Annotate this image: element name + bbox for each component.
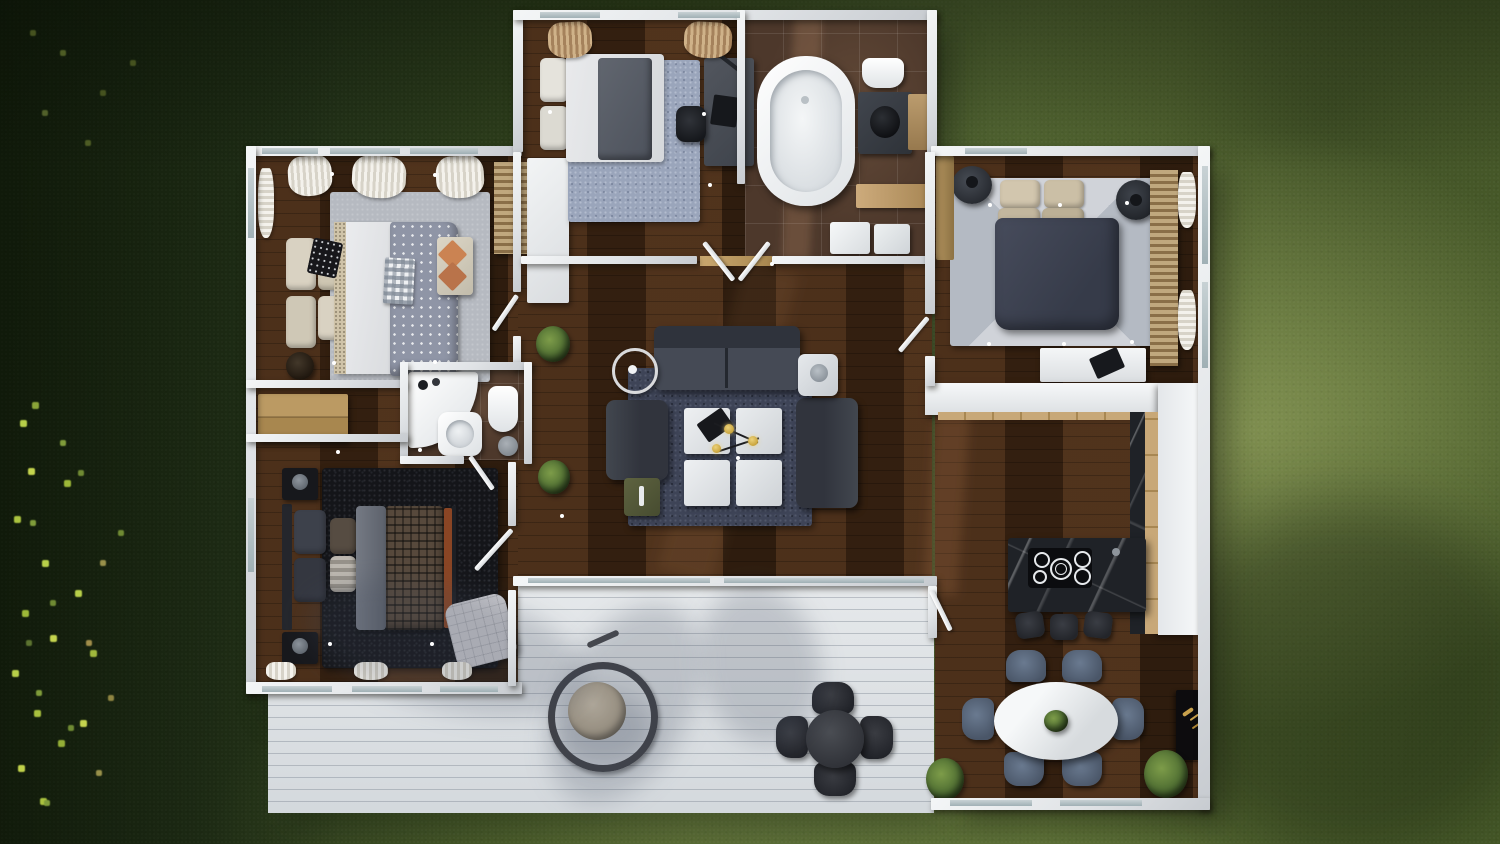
office-curtain [547, 21, 593, 59]
bedroom3-lamp [292, 474, 308, 490]
small-bath-toilet [488, 386, 518, 432]
bedroom1-side-curtain [258, 168, 274, 238]
living-armchair-left [606, 400, 668, 480]
kitchen-counter-top [925, 383, 1197, 415]
leaves-dull [60, 440, 66, 446]
shower-fixture [432, 378, 440, 386]
ceiling-lights [330, 172, 334, 176]
wall-interior [737, 10, 745, 184]
pendant-lamp-bulb [748, 436, 758, 446]
bedroom3-pillow [294, 510, 326, 554]
outdoor-table [806, 710, 864, 768]
living-sofa-cushion-split [725, 348, 728, 388]
outdoor-chair [776, 716, 808, 758]
office-pillow [540, 106, 568, 150]
white-wardrobe [527, 158, 569, 303]
window [1060, 800, 1142, 806]
window [440, 686, 498, 692]
pendant-lamp-bulb [712, 444, 721, 453]
window [678, 12, 740, 18]
window [1202, 282, 1208, 368]
kitchen-cabinet-wood-strip [1145, 412, 1158, 634]
master-slat-bench [1150, 170, 1178, 366]
bedroom3-curtain [442, 662, 472, 680]
coffee-table [736, 460, 782, 506]
leaves-bright [20, 420, 27, 427]
window [248, 168, 254, 238]
bathtub-basin [770, 70, 842, 192]
bedroom3-pillow [294, 558, 326, 602]
wall-interior [524, 362, 532, 464]
small-bath-stool [498, 436, 518, 456]
bar-stool [1014, 610, 1045, 640]
shower-fixture [418, 380, 428, 390]
living-plant [536, 326, 570, 362]
hanging-egg-chair-cushion [568, 682, 626, 740]
bath-dryer [874, 224, 910, 254]
window [248, 498, 254, 572]
kitchen-counter-right [1158, 383, 1200, 635]
cooktop-burner [1050, 558, 1072, 580]
bedroom3-lamp [292, 638, 308, 654]
ring-floor-lamp-core [628, 365, 637, 374]
office-chair [676, 106, 706, 142]
master-pillow [1044, 180, 1084, 208]
dining-chair [962, 698, 994, 740]
bedroom3-curtain [354, 662, 388, 680]
bath-toilet [862, 58, 904, 88]
master-lamp [966, 176, 978, 188]
island-faucet [1112, 548, 1120, 556]
window [1202, 166, 1208, 264]
pendant-lamp-bulb [724, 424, 734, 434]
bath-wood-shelf [908, 94, 928, 150]
wall-outer [927, 10, 937, 154]
wall-interior [521, 256, 697, 264]
wall-interior [513, 152, 521, 292]
bedroom3-pillow [330, 518, 356, 554]
bathtub-drain [801, 96, 809, 104]
bedroom1-curtain [351, 155, 407, 200]
wall-interior [925, 152, 935, 314]
wall-interior [400, 362, 532, 370]
bedroom1-curtain [435, 155, 485, 199]
master-curtain [1178, 290, 1196, 350]
bath-washer [830, 222, 870, 254]
wall-interior [400, 456, 464, 464]
coffee-table [684, 460, 730, 506]
cooktop-burner [1074, 551, 1091, 568]
outdoor-chair [860, 716, 893, 759]
living-plant [538, 460, 570, 494]
master-lamp [1130, 194, 1142, 206]
living-armchair-right [796, 398, 858, 508]
master-pillow [1000, 180, 1040, 208]
dining-chair [1062, 650, 1102, 682]
cooktop-burner [1034, 552, 1050, 568]
wall-interior [925, 356, 935, 386]
master-duvet [995, 218, 1119, 330]
bedroom3-pillow-silver [330, 556, 356, 592]
bar-stool [1050, 614, 1078, 640]
dining-centerpiece [1044, 710, 1068, 732]
leaves-top-corner [30, 30, 36, 36]
bedroom3-gray-runner [356, 506, 386, 630]
sliding-door-glass [528, 578, 710, 583]
wall-interior [508, 462, 516, 526]
wall-interior [246, 380, 406, 388]
window [950, 800, 1032, 806]
kitchen-plant [1144, 750, 1188, 798]
cooktop-burner [1074, 568, 1091, 585]
office-pillow [540, 58, 568, 102]
sliding-door-glass [724, 578, 924, 583]
wall-art-gold-bird [1176, 690, 1200, 760]
window [262, 148, 318, 154]
coffee-table [736, 408, 782, 454]
olive-ottoman-handle [639, 486, 644, 506]
bedroom3-curtain [266, 662, 296, 680]
wall-interior [246, 434, 408, 442]
bar-stool [1083, 610, 1114, 639]
window [540, 12, 600, 18]
living-side-table-vase [810, 364, 828, 382]
bedroom3-plaid-duvet [386, 506, 446, 630]
kitchen-counter-top-wood [938, 412, 1160, 420]
bath-wood-counter [856, 184, 928, 208]
window [965, 148, 1027, 154]
master-curtain [1178, 172, 1196, 228]
wall-outer [513, 10, 523, 152]
window [262, 686, 332, 692]
master-wood-cabinet [936, 156, 954, 260]
hall-threshold [700, 256, 772, 266]
window [352, 686, 422, 692]
wall-interior [400, 362, 408, 462]
slat-divider [494, 162, 528, 254]
cooktop-burner [1033, 570, 1047, 584]
window [330, 148, 400, 154]
kitchen-plant [926, 758, 964, 800]
office-curtain [683, 21, 733, 59]
small-bath-sink-bowl [446, 420, 474, 448]
bedroom1-check-blanket [383, 257, 415, 305]
office-laptop [710, 94, 740, 127]
bath-basin [870, 106, 900, 138]
bedroom1-pillow [286, 296, 316, 348]
bedroom3-headboard [282, 504, 292, 630]
aerial-floorplan-render [0, 0, 1500, 844]
wall-interior [508, 590, 516, 686]
wall-interior [772, 256, 935, 264]
office-gray-throw [598, 58, 652, 160]
dining-chair [1006, 650, 1046, 682]
bedroom1-side-table [286, 352, 314, 380]
window [410, 148, 478, 154]
